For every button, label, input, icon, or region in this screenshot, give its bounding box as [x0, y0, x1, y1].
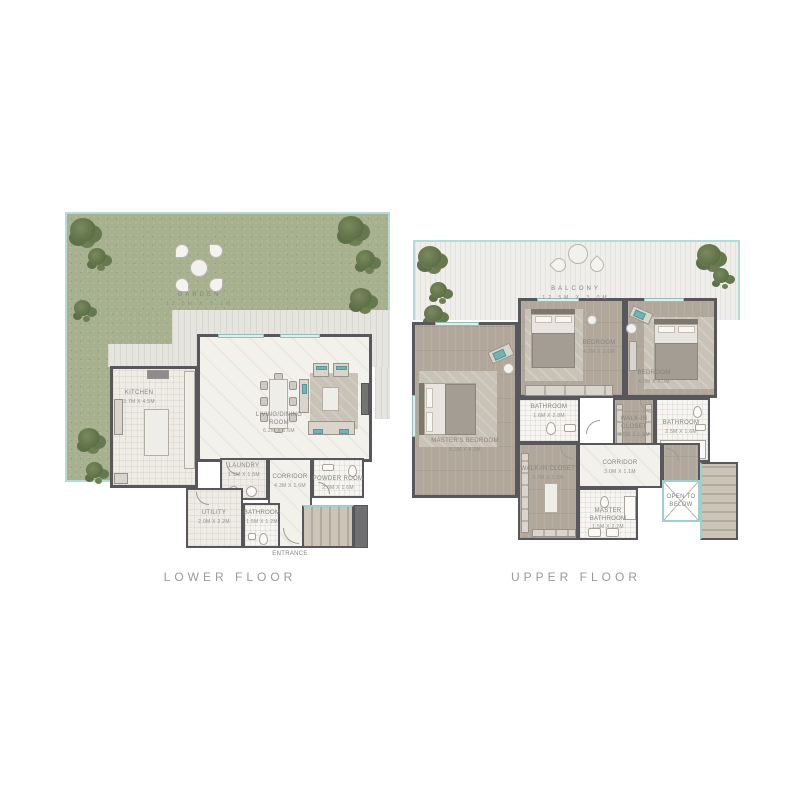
room-label-bathroom-lower: BATHROOM 1.5M X 1.2M	[242, 510, 282, 525]
tree-icon	[418, 246, 442, 268]
room-label-bath3: BATHROOM 2.5M X 1.6M	[655, 420, 707, 435]
tree-icon	[424, 305, 443, 322]
pillow	[426, 388, 433, 408]
balcony-chair	[587, 255, 607, 275]
lower-floor-title: LOWER FLOOR	[65, 570, 395, 584]
room-label-living: LIVING/DINING ROOM 6.2M X 5.6M	[254, 412, 304, 434]
desk-accessory	[633, 309, 646, 320]
desk-accessory	[492, 349, 506, 361]
stairs-upper	[700, 462, 738, 540]
room-label-bedroom2: BEDROOM 4.2M X 3.6M	[576, 340, 622, 355]
pillow	[678, 326, 695, 333]
blanket	[445, 384, 476, 435]
desk	[629, 305, 654, 325]
room-label-balcony: BALCONY 12.5M X 3.0M	[526, 286, 626, 301]
pillow	[535, 316, 552, 323]
room-label-kitchen: KITCHEN 3.7M X 4.5M	[114, 390, 164, 405]
toilet-icon	[693, 406, 702, 418]
window-icon	[644, 298, 684, 302]
room-label-bedroom3: BEDROOM 4.0M X 4.0M	[628, 370, 680, 385]
tree-icon	[713, 268, 729, 283]
balcony-table	[568, 244, 588, 264]
door-arc	[586, 420, 600, 434]
desk	[487, 343, 514, 365]
room-label-wic2: WALK-IN CLOSET 2.5M X 1.5M	[612, 416, 656, 438]
closet-island	[544, 483, 558, 513]
bed	[531, 314, 575, 368]
window-icon	[435, 322, 479, 326]
pillow	[658, 326, 675, 333]
wardrobe	[629, 341, 637, 371]
balcony-seating-set	[552, 244, 604, 280]
window-icon	[412, 395, 416, 437]
room-label-openbelow: OPEN TO BELOW	[664, 494, 698, 509]
wardrobe	[532, 529, 576, 537]
room-label-powder: POWDER ROOM 2.6M X 1.6M	[312, 476, 364, 491]
master-bedroom	[412, 322, 518, 498]
room-label-laundry: LAUNDRY 1.5M X 1.5M	[221, 463, 267, 478]
tree-icon	[697, 244, 721, 266]
side-table	[587, 315, 597, 325]
pillow	[426, 412, 433, 432]
room-label-master: MASTER'S BEDROOM 5.3M X 4.2M	[425, 438, 505, 453]
toilet-icon	[600, 496, 609, 508]
sink-icon	[564, 424, 576, 432]
tree-icon	[430, 282, 447, 298]
room-label-masterbath: MASTER BATHROOM 1.5M X 2.2M	[579, 508, 637, 530]
room-label-wic1: WALK-IN CLOSET 3.7M X 2.2M	[519, 466, 577, 481]
room-label-corridor-upper: CORRIDOR 3.0M X 1.1M	[592, 460, 648, 475]
toilet-icon	[546, 422, 556, 435]
desk-chair	[503, 363, 514, 374]
wardrobe	[521, 453, 529, 533]
room-label-garden: GARDEN 12.5M X 7.1M	[152, 292, 247, 307]
upper-floor-title: UPPER FLOOR	[410, 570, 742, 584]
bed	[424, 383, 476, 435]
desk-chair	[626, 323, 637, 334]
room-label-corridor-lower: CORRIDOR 4.3M X 1.6M	[268, 474, 312, 489]
room-label-bath2: BATHROOM 1.6M X 2.8M	[520, 404, 578, 419]
wardrobe-bench	[525, 385, 613, 396]
floorplan-sheet: GARDEN 12.5M X 7.1M KITCHEN 3.7M X 4.5M	[0, 0, 800, 800]
blanket	[532, 333, 575, 368]
entrance-label: ENTRANCE	[258, 551, 322, 559]
room-label-utility: UTILITY 2.0M X 2.2M	[189, 510, 239, 525]
pillow	[555, 316, 572, 323]
balcony-chair	[549, 255, 569, 275]
